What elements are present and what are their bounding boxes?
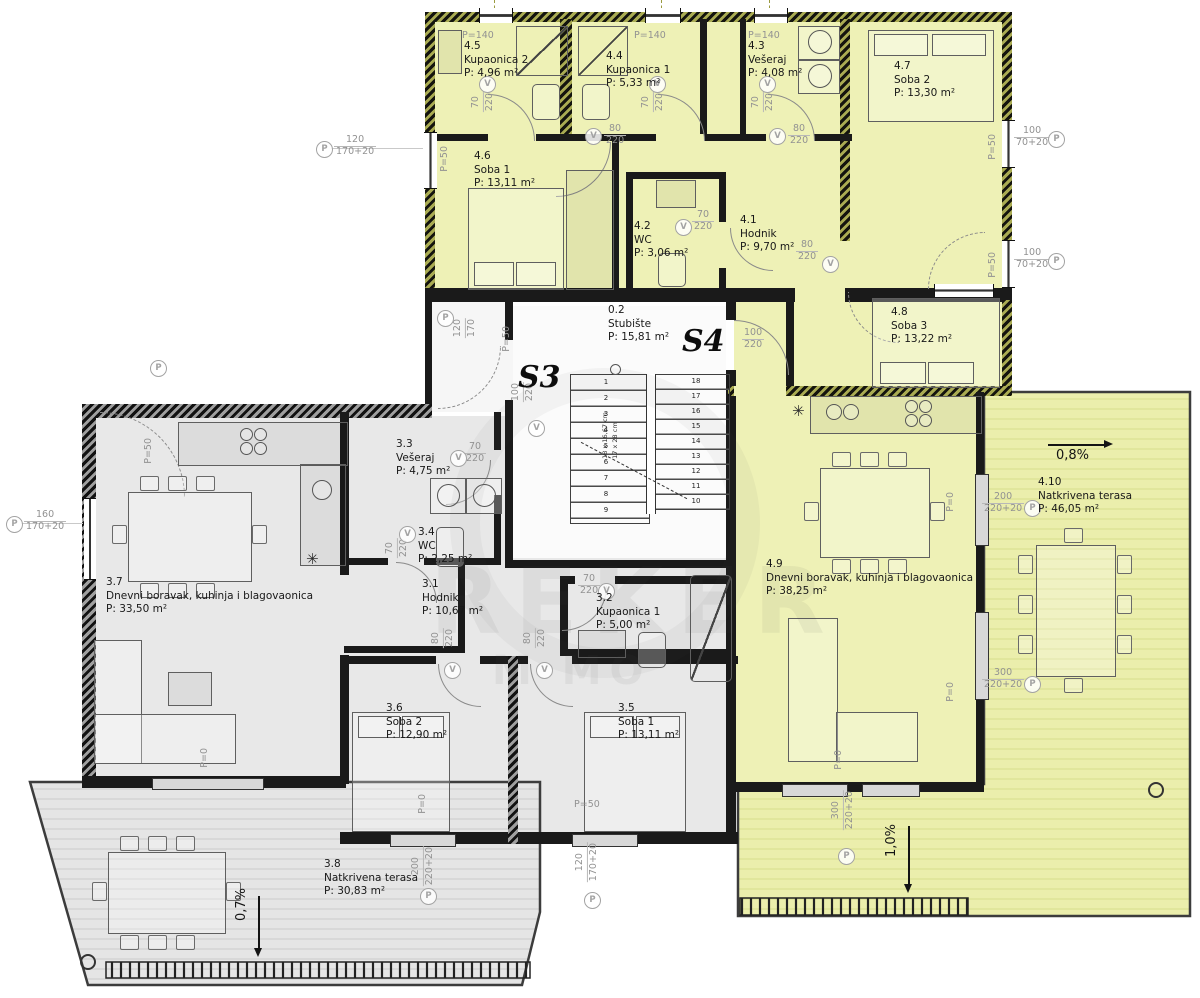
chair [1018,595,1033,614]
room-label-3-8: 3.8Natkrivena terasaP: 30,83 m² [324,858,418,899]
slope-label: 0,7% [234,888,249,921]
pillow [874,34,928,56]
asterisk-symbol: ✳ [306,550,319,568]
v-marker-icon: V [528,420,545,437]
chair [804,502,819,521]
dim-label: P=50 [440,146,451,172]
asterisk-symbol: ✳ [792,402,805,420]
slope-arrow [1048,444,1106,446]
chair [860,452,879,467]
dim-label: P=50 [988,134,999,160]
window [84,498,96,580]
dim-label: 120170 [452,318,479,338]
door-opening [436,656,480,664]
wall [840,19,850,140]
wall [626,172,726,179]
chair [832,452,851,467]
p-marker-icon: P [6,516,23,533]
pillow [932,34,986,56]
window [424,132,437,189]
dim-label: 300220+20 [830,790,857,830]
dim-label: P=50 [574,800,600,811]
dim-label: P=50 [502,326,513,352]
chair [1117,635,1132,654]
dim-label: 70220 [750,92,777,112]
room-label-3-7: 3.7Dnevni boravak, kuhinja i blagovaonic… [106,576,313,617]
dim-label: 120170+20 [574,842,601,882]
chair [1018,555,1033,574]
kitchen-sink-icon [312,480,332,500]
slope-arrowhead [1104,440,1113,448]
p-marker-icon: P [1048,253,1065,270]
room-label-3-2: 3.2Kupaonica 1P: 5,00 m² [596,592,660,633]
room-label-4-8: 4.8Soba 3P: 13,22 m² [891,306,952,347]
p-marker-icon: P [420,888,437,905]
slope-arrow [908,826,910,886]
kitchen-sink-icon [843,404,859,420]
room-label-4-10: 4.10Natkrivena terasaP: 46,05 m² [1038,476,1132,517]
chair [1117,555,1132,574]
dim-label: 80220 [522,628,549,648]
stove-burner-icon [254,428,267,441]
chair [120,836,139,851]
room-label-3-5: 3.5Soba 1P: 13,11 m² [618,702,679,743]
dim-label: P=50 [144,438,155,464]
slope-label: 1,0% [884,824,899,857]
dim-label: 80220 [788,124,810,147]
wall [719,268,726,288]
stove-burner-icon [240,428,253,441]
wall [1002,300,1012,392]
dim-label: 80220 [796,240,818,263]
chair [1117,595,1132,614]
room-label-3-6: 3.6Soba 2P: 12,90 m² [386,702,447,743]
wall [626,172,633,288]
dim-label: 100220 [742,328,764,351]
p-marker-icon: P [584,892,601,909]
chair [140,476,159,491]
slope-arrow [258,896,260,950]
wall [425,12,1012,22]
stove-burner-icon [919,400,932,413]
slope-arrowhead [254,948,262,957]
chair [176,935,195,950]
stove-burner-icon [905,400,918,413]
chair [176,836,195,851]
dim-label: 160170+20 [24,510,66,533]
wall [719,172,726,222]
dim-label: P=0 [946,682,957,702]
wall [726,300,736,320]
dim-label: 120170+20 [334,135,376,158]
apartment-label-s3: S3 [518,360,561,395]
chair [1018,635,1033,654]
window [645,8,681,23]
dim-label: 10070+20 [1014,248,1050,271]
dim-label: P=0 [200,748,211,768]
wall [425,300,432,412]
room-label-4-4: 4.4Kupaonica 1P: 5,33 m² [606,50,670,91]
room-label-3-4: 3.4WCP: 2,25 m² [418,526,472,567]
v-marker-icon: V [444,662,461,679]
chair [120,935,139,950]
chair [92,882,107,901]
sink [656,180,696,208]
kitchen-sink-icon [826,404,842,420]
p-marker-icon: P [1024,676,1041,693]
p-marker-icon: P [150,360,167,377]
wall [840,141,850,241]
terrace-table [1036,545,1116,677]
room-label-4-2: 4.2WCP: 3,06 m² [634,220,688,261]
sliding-door [862,784,920,797]
chair [168,476,187,491]
v-marker-icon: V [769,128,786,145]
dim-label: P=0 [946,492,957,512]
pillow [474,262,514,286]
room-label-4-6: 4.6Soba 1P: 13,11 m² [474,150,535,191]
chair [196,476,215,491]
slope-label: 0,8% [1056,448,1089,463]
coffee-table [168,672,212,706]
chair [252,525,267,544]
p-marker-icon: P [838,848,855,865]
pillow [928,362,974,384]
dim-label: 200220+20 [982,492,1024,515]
toilet [532,84,560,120]
dim-label: P=0 [418,794,429,814]
dim-label: 70220 [470,92,497,112]
v-marker-icon: V [822,256,839,273]
sofa [94,714,236,764]
dim-label: 70220 [464,442,486,465]
p-marker-icon: P [437,310,454,327]
dining-table [820,468,930,558]
dim-label: P=0 [834,750,845,770]
v-marker-icon: V [450,450,467,467]
dim-label: 300220+20 [982,668,1024,691]
pillow [516,262,556,286]
wall [786,296,794,392]
dining-table [128,492,252,582]
stove-burner-icon [905,414,918,427]
wall [82,404,432,418]
sink [438,30,462,74]
room-label-3-3: 3.3VešerajP: 4,75 m² [396,438,450,479]
window [754,8,788,23]
wardrobe [566,170,614,290]
dim-label: 70220 [692,210,714,233]
washer-drum-icon [808,30,832,54]
chair [148,836,167,851]
stove-burner-icon [240,442,253,455]
room-label-4-3: 4.3VešerajP: 4,08 m² [748,40,802,81]
terrace-table [108,852,226,934]
room-label-4-5: 4.5Kupaonica 2P: 4,96 m² [464,40,528,81]
p-marker-icon: P [316,141,333,158]
door-opening [734,386,786,396]
door-opening [795,288,845,302]
chair [112,525,127,544]
chair [148,935,167,950]
room-label-0-2: 0.2StubišteP: 15,81 m² [608,304,669,345]
opening [340,575,349,655]
room-label-4-9: 4.9Dnevni boravak, kuhinja i blagovaonic… [766,558,973,599]
chair [888,452,907,467]
v-marker-icon: V [585,128,602,145]
dim-label: 70220 [640,92,667,112]
v-marker-icon: V [536,662,553,679]
p-marker-icon: P [1048,131,1065,148]
sofa [836,712,918,762]
watermark-text: M MO [492,648,652,694]
window [479,8,513,23]
floor-plan: 123456789 181716151413121110 18 x 16,67 … [0,0,1200,998]
dim-label: 80220 [430,628,457,648]
stove-burner-icon [254,442,267,455]
pillow [880,362,926,384]
dim-label: 80220 [604,124,626,147]
chair [1064,528,1083,543]
dim-label: P=140 [634,31,666,42]
dim-label: 10070+20 [1014,126,1050,149]
wall [740,19,746,140]
room-label-4-1: 4.1HodnikP: 9,70 m² [740,214,794,255]
stove-burner-icon [919,414,932,427]
room-label-3-1: 3.1HodnikP: 10,67 m² [422,578,483,619]
slope-arrowhead [904,884,912,893]
room-label-4-7: 4.7Soba 2P: 13,30 m² [894,60,955,101]
dim-label: P=50 [988,252,999,278]
wall [976,392,984,782]
chair [1064,678,1083,693]
apartment-label-s4: S4 [682,324,725,359]
dryer-drum-icon [808,64,832,88]
v-marker-icon: V [399,526,416,543]
chair [930,502,945,521]
sliding-door [152,778,264,790]
